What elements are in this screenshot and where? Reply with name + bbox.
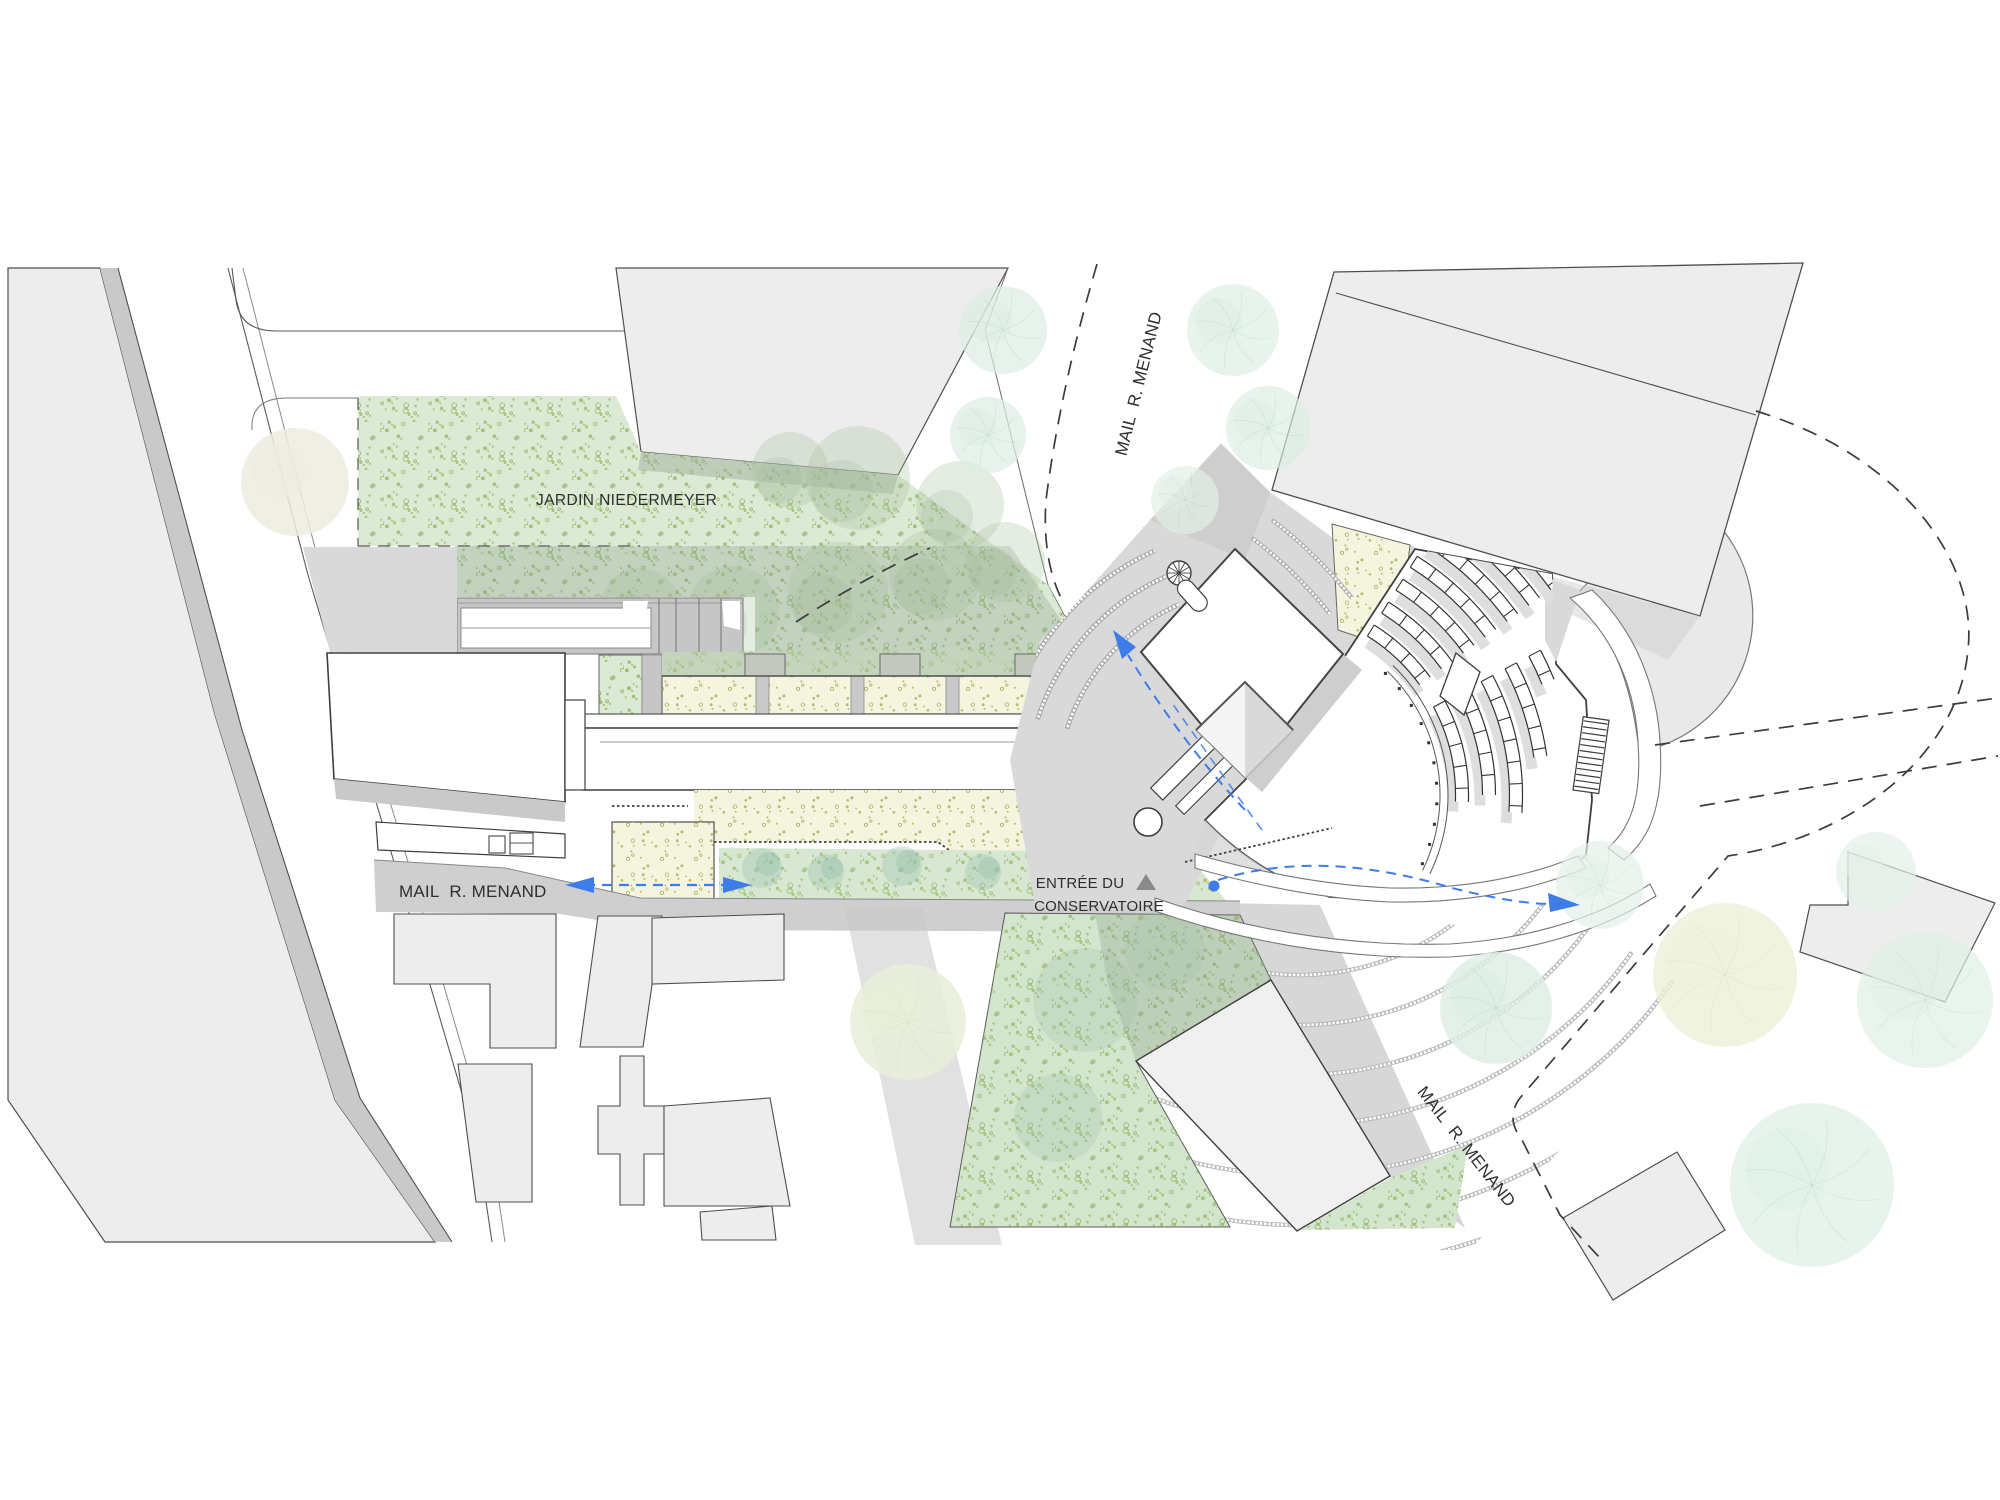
svg-text:MAIL R. MENAND: MAIL R. MENAND (399, 882, 547, 901)
svg-text:CONSERVATOIRE: CONSERVATOIRE (1034, 898, 1164, 915)
svg-text:JARDIN NIEDERMEYER: JARDIN NIEDERMEYER (536, 492, 717, 509)
svg-text:ENTRÉE DU: ENTRÉE DU (1036, 875, 1124, 892)
